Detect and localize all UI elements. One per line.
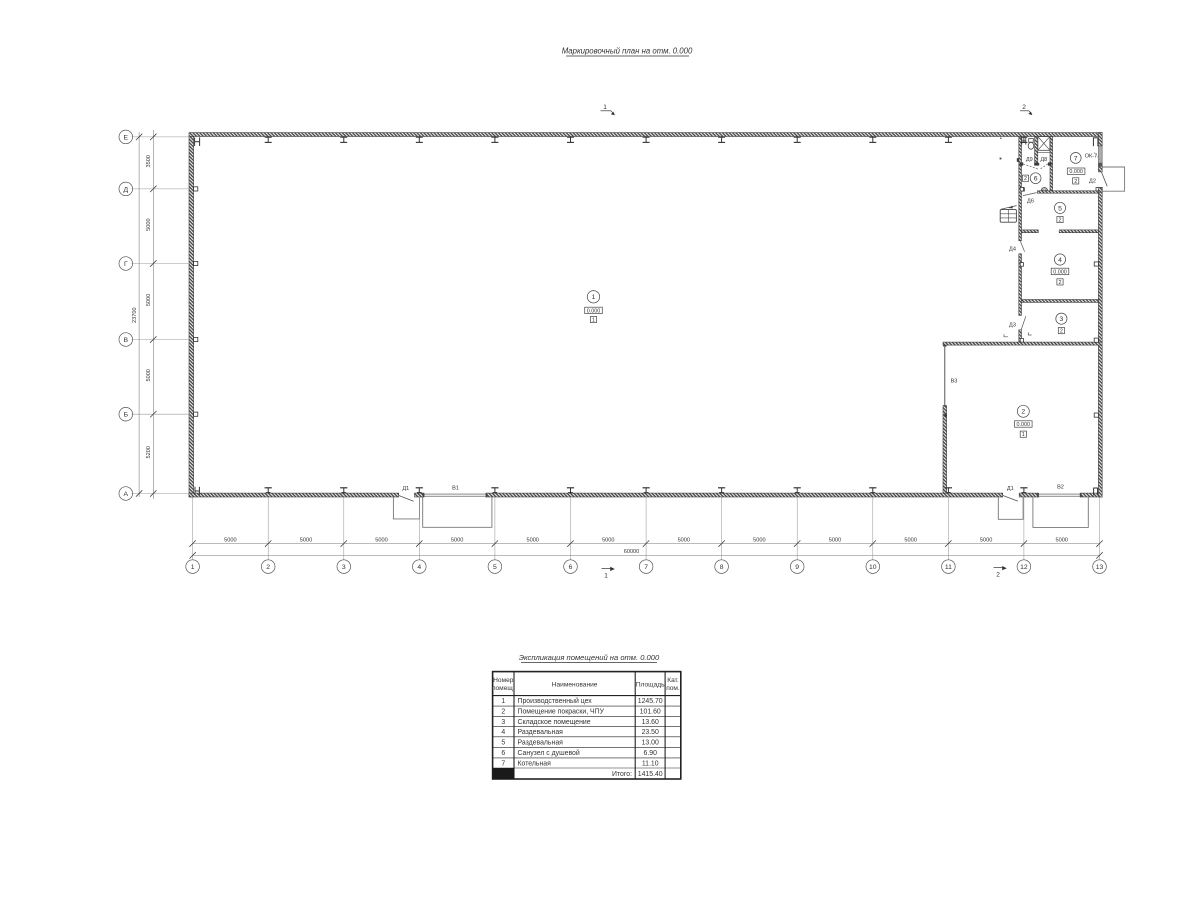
svg-text:11: 11	[945, 564, 952, 571]
svg-text:Д: Д	[123, 186, 128, 193]
svg-text:2: 2	[996, 572, 1000, 579]
svg-text:5000: 5000	[300, 537, 312, 543]
svg-text:0.000: 0.000	[1017, 422, 1031, 428]
svg-text:1: 1	[191, 564, 195, 571]
svg-text:Д4: Д4	[1009, 247, 1016, 253]
svg-text:Б: Б	[124, 412, 129, 419]
svg-text:7: 7	[501, 761, 505, 768]
svg-text:1: 1	[604, 573, 608, 580]
svg-text:0.000: 0.000	[1053, 269, 1067, 275]
svg-text:2: 2	[501, 709, 505, 716]
svg-text:4: 4	[1058, 257, 1062, 264]
svg-text:5: 5	[1058, 205, 1062, 212]
svg-text:6.90: 6.90	[643, 750, 657, 757]
svg-text:5000: 5000	[146, 369, 152, 381]
svg-text:5000: 5000	[224, 537, 236, 543]
svg-text:Д1: Д1	[402, 486, 409, 492]
svg-text:Наименование: Наименование	[552, 682, 598, 689]
svg-text:Экспликация помещений на отм.: Экспликация помещений на отм. 0.000	[519, 653, 660, 662]
svg-text:Котельная: Котельная	[518, 761, 552, 768]
svg-text:Д3: Д3	[1009, 323, 1016, 329]
svg-text:Раздевальная: Раздевальная	[518, 739, 564, 746]
svg-text:0.000: 0.000	[587, 308, 601, 314]
svg-text:5: 5	[501, 739, 505, 746]
svg-text:7: 7	[1074, 155, 1078, 162]
svg-text:5000: 5000	[829, 537, 841, 543]
svg-text:2: 2	[1074, 179, 1077, 185]
svg-text:11.10: 11.10	[642, 761, 659, 768]
svg-text:101.60: 101.60	[640, 709, 661, 716]
svg-text:Г: Г	[124, 261, 128, 268]
svg-text:3: 3	[1060, 316, 1064, 323]
svg-text:1415.40: 1415.40	[638, 771, 663, 778]
svg-text:2: 2	[266, 564, 270, 571]
svg-text:3500: 3500	[146, 155, 152, 167]
svg-text:В3: В3	[951, 379, 958, 385]
svg-text:5000: 5000	[375, 537, 387, 543]
svg-text:2: 2	[1059, 280, 1062, 286]
svg-text:5000: 5000	[678, 537, 690, 543]
svg-text:5000: 5000	[146, 218, 152, 230]
svg-text:пом.: пом.	[666, 685, 680, 692]
svg-text:Д6: Д6	[1027, 199, 1034, 205]
svg-text:В2: В2	[1057, 485, 1064, 491]
svg-text:2: 2	[1021, 409, 1025, 416]
svg-text:5000: 5000	[1055, 537, 1067, 543]
svg-text:Д1: Д1	[1007, 486, 1014, 492]
svg-text:Итого:: Итого:	[612, 771, 632, 778]
svg-text:Производственный цех: Производственный цех	[518, 697, 593, 705]
svg-text:Д9: Д9	[1026, 157, 1033, 163]
svg-text:1: 1	[592, 317, 595, 323]
svg-text:6: 6	[501, 750, 505, 757]
svg-text:В: В	[124, 337, 129, 344]
svg-text:9: 9	[795, 564, 799, 571]
svg-text:7: 7	[644, 564, 648, 571]
svg-text:Д8: Д8	[1040, 157, 1047, 163]
svg-text:5000: 5000	[146, 294, 152, 306]
svg-text:Площадь: Площадь	[636, 682, 665, 689]
svg-text:13: 13	[1096, 564, 1104, 571]
svg-text:Кат.: Кат.	[667, 677, 679, 684]
svg-text:6: 6	[569, 564, 573, 571]
svg-text:5000: 5000	[753, 537, 765, 543]
svg-text:3: 3	[342, 564, 346, 571]
svg-text:А: А	[124, 491, 129, 498]
svg-text:Помещение покраски, ЧПУ: Помещение покраски, ЧПУ	[518, 709, 605, 716]
svg-text:23.50: 23.50	[642, 729, 659, 736]
svg-text:Складское помещение: Складское помещение	[518, 719, 591, 726]
svg-text:0.000: 0.000	[1069, 169, 1083, 175]
svg-text:13.60: 13.60	[642, 719, 659, 726]
svg-text:Д2: Д2	[1089, 179, 1096, 185]
svg-text:5000: 5000	[451, 537, 463, 543]
svg-text:13.00: 13.00	[642, 739, 659, 746]
svg-text:помещ.: помещ.	[492, 685, 515, 692]
svg-text:23700: 23700	[132, 307, 138, 323]
svg-text:Номер: Номер	[493, 677, 514, 684]
svg-text:10: 10	[869, 564, 877, 571]
svg-text:2: 2	[1060, 329, 1063, 335]
svg-text:5200: 5200	[146, 446, 152, 458]
svg-text:4: 4	[501, 729, 505, 736]
svg-text:12: 12	[1020, 564, 1028, 571]
svg-text:60000: 60000	[624, 549, 640, 555]
svg-text:3: 3	[501, 719, 505, 726]
svg-text:4: 4	[417, 564, 421, 571]
svg-text:Е: Е	[124, 134, 129, 141]
svg-text:Раздевальная: Раздевальная	[518, 729, 564, 736]
svg-text:1: 1	[501, 698, 505, 705]
svg-text:1245.70: 1245.70	[638, 698, 663, 705]
svg-text:2: 2	[1022, 104, 1026, 111]
svg-text:6: 6	[1034, 176, 1038, 183]
svg-text:5000: 5000	[526, 537, 538, 543]
svg-text:1: 1	[1022, 432, 1025, 438]
svg-text:Маркировочный план на отм. 0.0: Маркировочный план на отм. 0.000	[562, 47, 693, 56]
svg-text:ОК-7: ОК-7	[1085, 154, 1098, 160]
svg-text:5: 5	[493, 564, 497, 571]
svg-text:1: 1	[592, 294, 596, 301]
svg-text:5000: 5000	[904, 537, 916, 543]
svg-text:8: 8	[720, 564, 724, 571]
svg-text:2: 2	[1024, 176, 1027, 182]
svg-text:1: 1	[603, 104, 607, 111]
svg-text:5000: 5000	[980, 537, 992, 543]
svg-text:Санузел с душевой: Санузел с душевой	[518, 749, 580, 757]
svg-text:2: 2	[1059, 217, 1062, 223]
svg-text:5000: 5000	[602, 537, 614, 543]
svg-text:В1: В1	[452, 486, 459, 492]
